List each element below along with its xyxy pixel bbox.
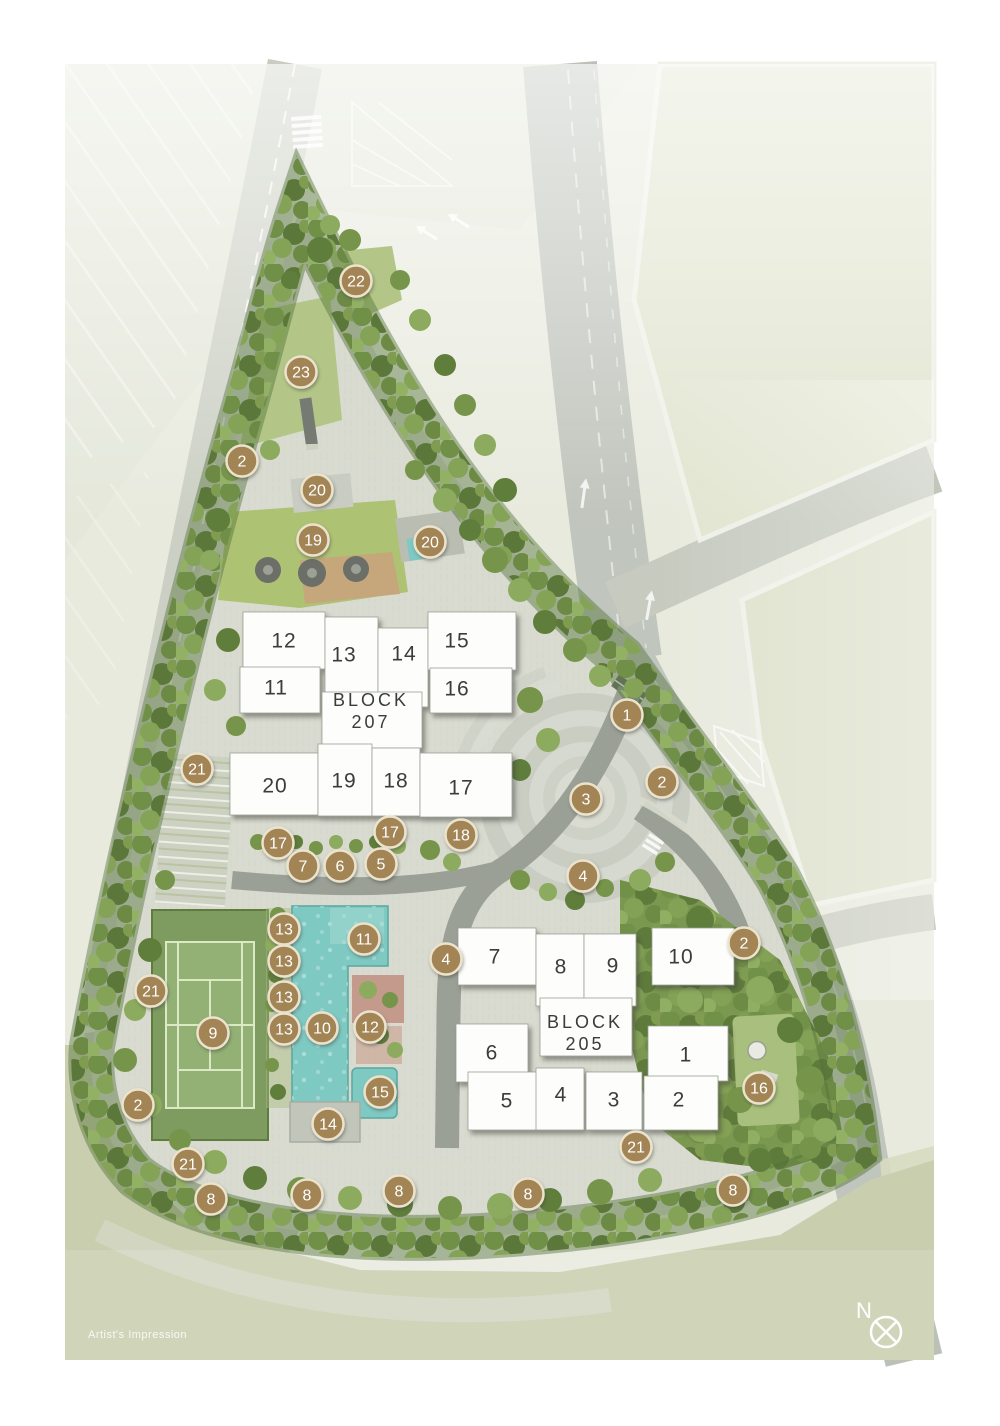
site-marker-5: 5 (366, 849, 397, 880)
site-marker-4: 4 (568, 861, 599, 892)
unit-number: 19 (331, 770, 356, 793)
site-marker-20: 20 (415, 527, 446, 558)
site-marker-20: 20 (302, 475, 333, 506)
site-marker-6: 6 (325, 851, 356, 882)
site-marker-2: 2 (729, 928, 760, 959)
site-marker-number: 20 (308, 483, 326, 500)
artists-impression-label: Artist's Impression (88, 1329, 187, 1341)
block-205-number: 205 (565, 1034, 604, 1054)
site-marker-number: 2 (740, 936, 749, 953)
site-marker-8: 8 (384, 1176, 415, 1207)
site-marker-8: 8 (196, 1184, 227, 1215)
site-marker-8: 8 (513, 1179, 544, 1210)
site-marker-19: 19 (298, 525, 329, 556)
site-marker-number: 21 (142, 984, 160, 1001)
unit-number: 13 (331, 644, 356, 667)
site-marker-2: 2 (123, 1090, 154, 1121)
site-marker-number: 2 (658, 775, 667, 792)
site-marker-21: 21 (621, 1132, 652, 1163)
site-marker-number: 19 (304, 533, 322, 550)
site-marker-13: 13 (269, 946, 300, 977)
site-marker-number: 21 (627, 1140, 645, 1157)
site-marker-3: 3 (571, 784, 602, 815)
site-marker-13: 13 (269, 1014, 300, 1045)
site-marker-21: 21 (182, 754, 213, 785)
unit-number: 8 (555, 956, 568, 979)
block-207-name: BLOCK (333, 690, 409, 710)
unit-number: 14 (391, 643, 416, 666)
site-marker-number: 8 (729, 1183, 738, 1200)
site-marker-13: 13 (269, 982, 300, 1013)
site-marker-number: 20 (421, 535, 439, 552)
unit-number: 20 (262, 775, 287, 798)
unit-number: 16 (444, 678, 469, 701)
unit-number: 12 (271, 630, 296, 653)
unit-number: 7 (489, 946, 502, 969)
site-marker-number: 18 (452, 828, 470, 845)
unit-number: 4 (555, 1084, 568, 1107)
site-marker-8: 8 (292, 1180, 323, 1211)
site-marker-number: 4 (579, 869, 588, 886)
site-marker-number: 22 (347, 274, 365, 291)
site-marker-2: 2 (647, 767, 678, 798)
site-marker-8: 8 (718, 1175, 749, 1206)
site-marker-number: 13 (275, 990, 293, 1007)
unit-number: 17 (448, 777, 473, 800)
unit-number: 11 (264, 677, 288, 700)
site-marker-number: 10 (313, 1021, 331, 1038)
site-marker-14: 14 (313, 1109, 344, 1140)
site-marker-10: 10 (307, 1013, 338, 1044)
site-marker-number: 8 (524, 1187, 533, 1204)
unit-number: 9 (607, 955, 620, 978)
site-marker-number: 21 (188, 762, 206, 779)
compass-north-label: N (856, 1298, 872, 1323)
site-marker-21: 21 (136, 976, 167, 1007)
site-marker-2: 2 (227, 446, 258, 477)
unit-number: 15 (444, 630, 469, 653)
site-marker-number: 4 (442, 952, 451, 969)
site-marker-number: 7 (299, 859, 308, 876)
site-marker-12: 12 (355, 1012, 386, 1043)
site-marker-number: 3 (582, 792, 591, 809)
site-marker-13: 13 (269, 914, 300, 945)
site-marker-number: 1 (623, 708, 632, 725)
site-marker-21: 21 (173, 1149, 204, 1180)
site-marker-number: 17 (269, 836, 287, 853)
site-marker-18: 18 (446, 820, 477, 851)
site-marker-number: 17 (381, 825, 399, 842)
site-marker-11: 11 (349, 924, 380, 955)
site-marker-17: 17 (263, 828, 294, 859)
site-marker-16: 16 (744, 1073, 775, 1104)
site-marker-number: 6 (336, 859, 345, 876)
site-marker-number: 5 (377, 857, 386, 874)
unit-number: 6 (486, 1042, 499, 1065)
site-plan: 12131415111620191817BLOCK207 78910615432… (0, 0, 1000, 1426)
site-marker-4: 4 (431, 944, 462, 975)
site-marker-number: 9 (209, 1026, 218, 1043)
unit-number: 18 (383, 770, 408, 793)
block-207-number: 207 (351, 712, 390, 732)
site-marker-22: 22 (341, 266, 372, 297)
site-marker-number: 11 (356, 932, 373, 949)
site-marker-number: 13 (275, 954, 293, 971)
site-marker-number: 23 (292, 365, 310, 382)
site-marker-17: 17 (375, 817, 406, 848)
site-marker-number: 15 (371, 1085, 389, 1102)
site-marker-15: 15 (365, 1077, 396, 1108)
site-marker-7: 7 (288, 851, 319, 882)
block-205-name: BLOCK (547, 1012, 623, 1032)
site-marker-9: 9 (198, 1018, 229, 1049)
site-marker-number: 2 (134, 1098, 143, 1115)
unit-number: 3 (608, 1089, 621, 1112)
site-marker-1: 1 (612, 700, 643, 731)
site-marker-number: 8 (303, 1188, 312, 1205)
site-marker-number: 8 (395, 1184, 404, 1201)
unit-number: 2 (673, 1089, 686, 1112)
site-marker-number: 2 (238, 454, 247, 471)
site-marker-number: 21 (179, 1157, 197, 1174)
site-marker-number: 8 (207, 1192, 216, 1209)
site-marker-number: 16 (750, 1081, 768, 1098)
site-marker-number: 12 (361, 1020, 379, 1037)
site-marker-23: 23 (286, 357, 317, 388)
site-marker-number: 13 (275, 1022, 293, 1039)
unit-number: 5 (501, 1090, 514, 1113)
unit-number: 1 (680, 1044, 693, 1067)
site-marker-number: 14 (319, 1117, 337, 1134)
site-marker-number: 13 (275, 922, 293, 939)
unit-number: 10 (668, 946, 693, 969)
